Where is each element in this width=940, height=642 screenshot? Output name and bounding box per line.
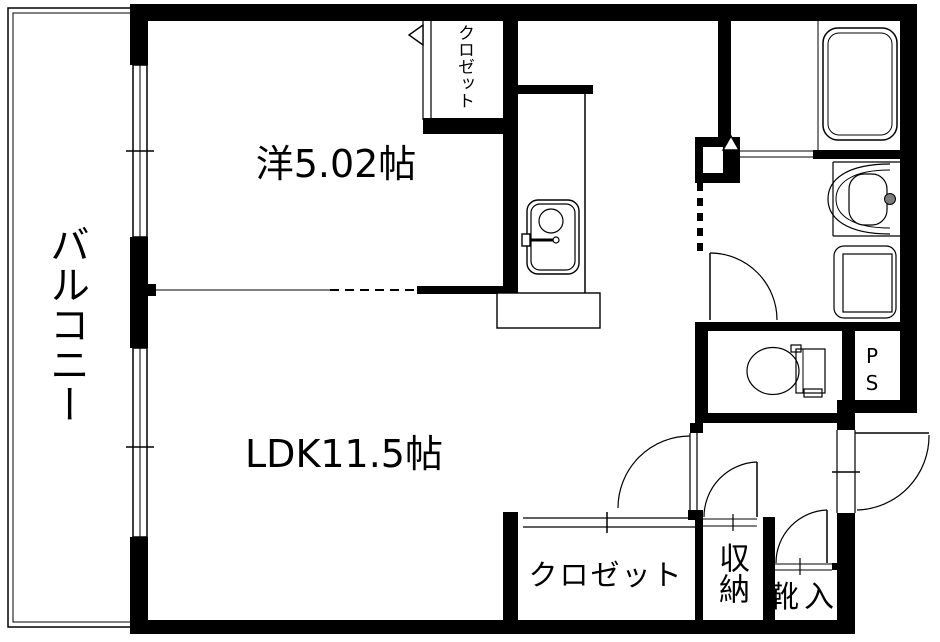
wall-shoe-right-nub	[832, 563, 837, 570]
shoe-cabinet: 靴入	[769, 510, 839, 615]
washroom	[700, 162, 900, 320]
wall-left-middle	[130, 237, 148, 348]
wall-toilet-left	[695, 331, 708, 423]
wall-ps-bottom-step	[837, 400, 917, 413]
storage-door-arc	[704, 462, 757, 517]
bathtub-inner	[828, 33, 892, 135]
toilet-tank	[796, 349, 825, 393]
western-room-label: 洋5.02帖	[256, 142, 417, 186]
ldk: LDK11.5帖	[245, 432, 443, 476]
washroom-door-arc	[710, 253, 777, 320]
pipe-space: PS	[860, 344, 884, 398]
bathtub-icon	[823, 28, 897, 140]
entrance-door-arc	[857, 435, 929, 510]
wall-top	[130, 4, 917, 21]
wall-left-upper	[130, 4, 148, 65]
wall-entrance-above	[837, 413, 855, 430]
wall-toilet-top	[695, 322, 917, 331]
wall-bottom	[130, 620, 855, 634]
washbasin-faucet-knob	[885, 194, 896, 205]
wall-storage-left	[695, 517, 703, 620]
bathroom	[723, 20, 897, 157]
kitchen-counter-base	[497, 293, 600, 328]
balcony: バルコニー	[8, 8, 130, 627]
closet-top-label: クロゼット	[454, 24, 474, 109]
toilet-bowl-icon	[747, 348, 799, 395]
wall-closet-top-bottom	[423, 118, 503, 134]
wall-storage-shoe-divider	[763, 517, 775, 634]
closet-bottom-label: クロゼット	[528, 558, 683, 592]
floor-plan-svg: バルコニー	[0, 0, 940, 642]
wall-entrance-below	[837, 513, 855, 620]
wall-left-lower	[130, 537, 148, 634]
shoe-cabinet-label: 靴入	[769, 580, 839, 615]
wall-closet-bottom-left	[503, 512, 518, 634]
kitchen-faucet-base	[522, 234, 530, 246]
wall-right	[900, 4, 917, 413]
shoe-door-arc	[776, 510, 827, 563]
floor-plan: バルコニー	[0, 0, 940, 642]
toilet-room	[747, 345, 825, 397]
balcony-label: バルコニー	[43, 224, 89, 424]
storage: 収納	[703, 462, 757, 604]
closet-bottom: クロゼット	[523, 512, 695, 592]
wall-hall-door-top	[690, 423, 703, 433]
ldk-label: LDK11.5帖	[245, 432, 443, 476]
ldk-door-arc	[618, 436, 690, 508]
pipe-space-label: PS	[860, 344, 884, 398]
wall-bath-left	[718, 20, 731, 148]
hallway	[618, 433, 697, 510]
wall-washroom-corner-notch	[703, 147, 723, 173]
washbasin-icon	[849, 174, 887, 225]
wall-room-divider-thick	[417, 286, 503, 294]
kitchen-sink-icon	[527, 200, 579, 274]
washbasin-bowl-inner	[836, 170, 890, 228]
closet-top: クロゼット	[409, 20, 474, 120]
wall-toilet-bottom	[695, 413, 855, 423]
wall-bath-bottom	[813, 150, 917, 159]
storage-label: 収納	[713, 542, 750, 604]
western-room: 洋5.02帖	[148, 142, 417, 290]
wall-kitchen-back	[503, 4, 518, 293]
closet-top-door-arrow-icon	[409, 25, 423, 45]
washing-machine-pan-inner	[843, 254, 892, 312]
entrance	[832, 430, 929, 513]
